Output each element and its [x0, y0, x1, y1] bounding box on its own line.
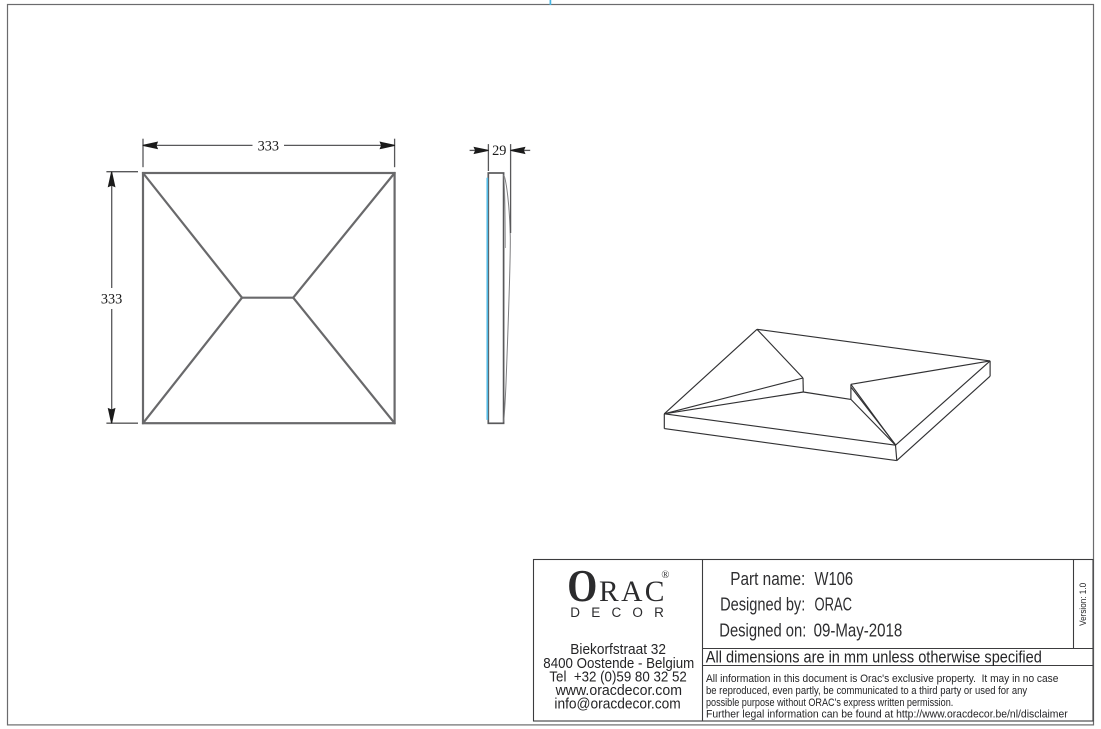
svg-text:333: 333 — [258, 139, 279, 155]
svg-text:All dimensions are in mm unles: All dimensions are in mm unless otherwis… — [706, 649, 1042, 667]
svg-text:ORAC: ORAC — [815, 593, 853, 614]
svg-text:RAC: RAC — [599, 576, 667, 608]
svg-text:333: 333 — [101, 291, 122, 307]
svg-text:Designed on:: Designed on: — [719, 620, 806, 641]
svg-text:®: ® — [661, 570, 669, 581]
svg-text:possible purpose without ORAC': possible purpose without ORAC's express … — [706, 697, 953, 709]
svg-text:29: 29 — [492, 143, 506, 159]
svg-text:info@oracdecor.com: info@oracdecor.com — [554, 696, 680, 713]
svg-text:W106: W106 — [815, 568, 854, 589]
svg-text:Designed by:: Designed by: — [720, 593, 805, 614]
svg-text:Part name:: Part name: — [730, 568, 805, 589]
svg-text:09-May-2018: 09-May-2018 — [814, 620, 903, 641]
svg-text:be reproduced, even partly, be: be reproduced, even partly, be communica… — [706, 685, 1027, 697]
svg-text:DECOR: DECOR — [570, 605, 675, 620]
svg-text:Version: 1.0: Version: 1.0 — [1078, 583, 1088, 626]
svg-text:All information in this docume: All information in this document is Orac… — [706, 673, 1058, 685]
svg-text:Further legal information can: Further legal information can be found a… — [706, 709, 1068, 721]
